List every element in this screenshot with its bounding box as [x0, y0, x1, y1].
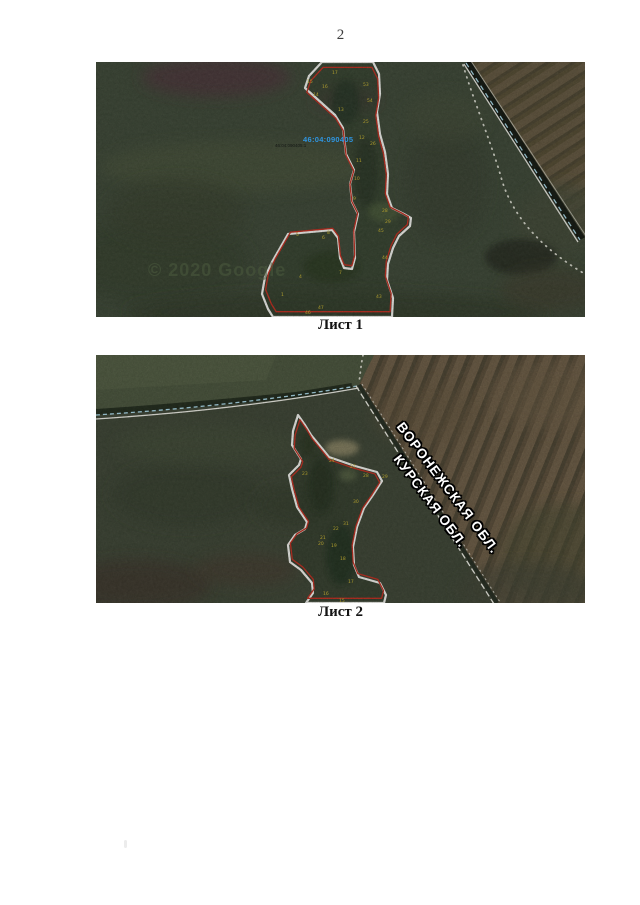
page-number: 2 — [96, 27, 585, 44]
satellite-map-sheet-1: 1715161453541325122611109282945448654714… — [96, 62, 585, 317]
cadastral-parcel-label: 46:04:090405:1 — [275, 143, 306, 148]
satellite-map-sheet-2: 242723282930312221201918171615 ВОРОНЕЖСК… — [96, 355, 585, 603]
imagery-watermark: © 2020 Google — [148, 260, 286, 281]
figure-caption-sheet-2: Лист 2 — [96, 604, 585, 621]
document-page: 2 — [0, 0, 640, 905]
figure-caption-sheet-1: Лист 1 — [96, 317, 585, 334]
cadastral-quarter-label: 46:04:090405 — [303, 135, 353, 144]
scan-artifact — [124, 840, 127, 848]
